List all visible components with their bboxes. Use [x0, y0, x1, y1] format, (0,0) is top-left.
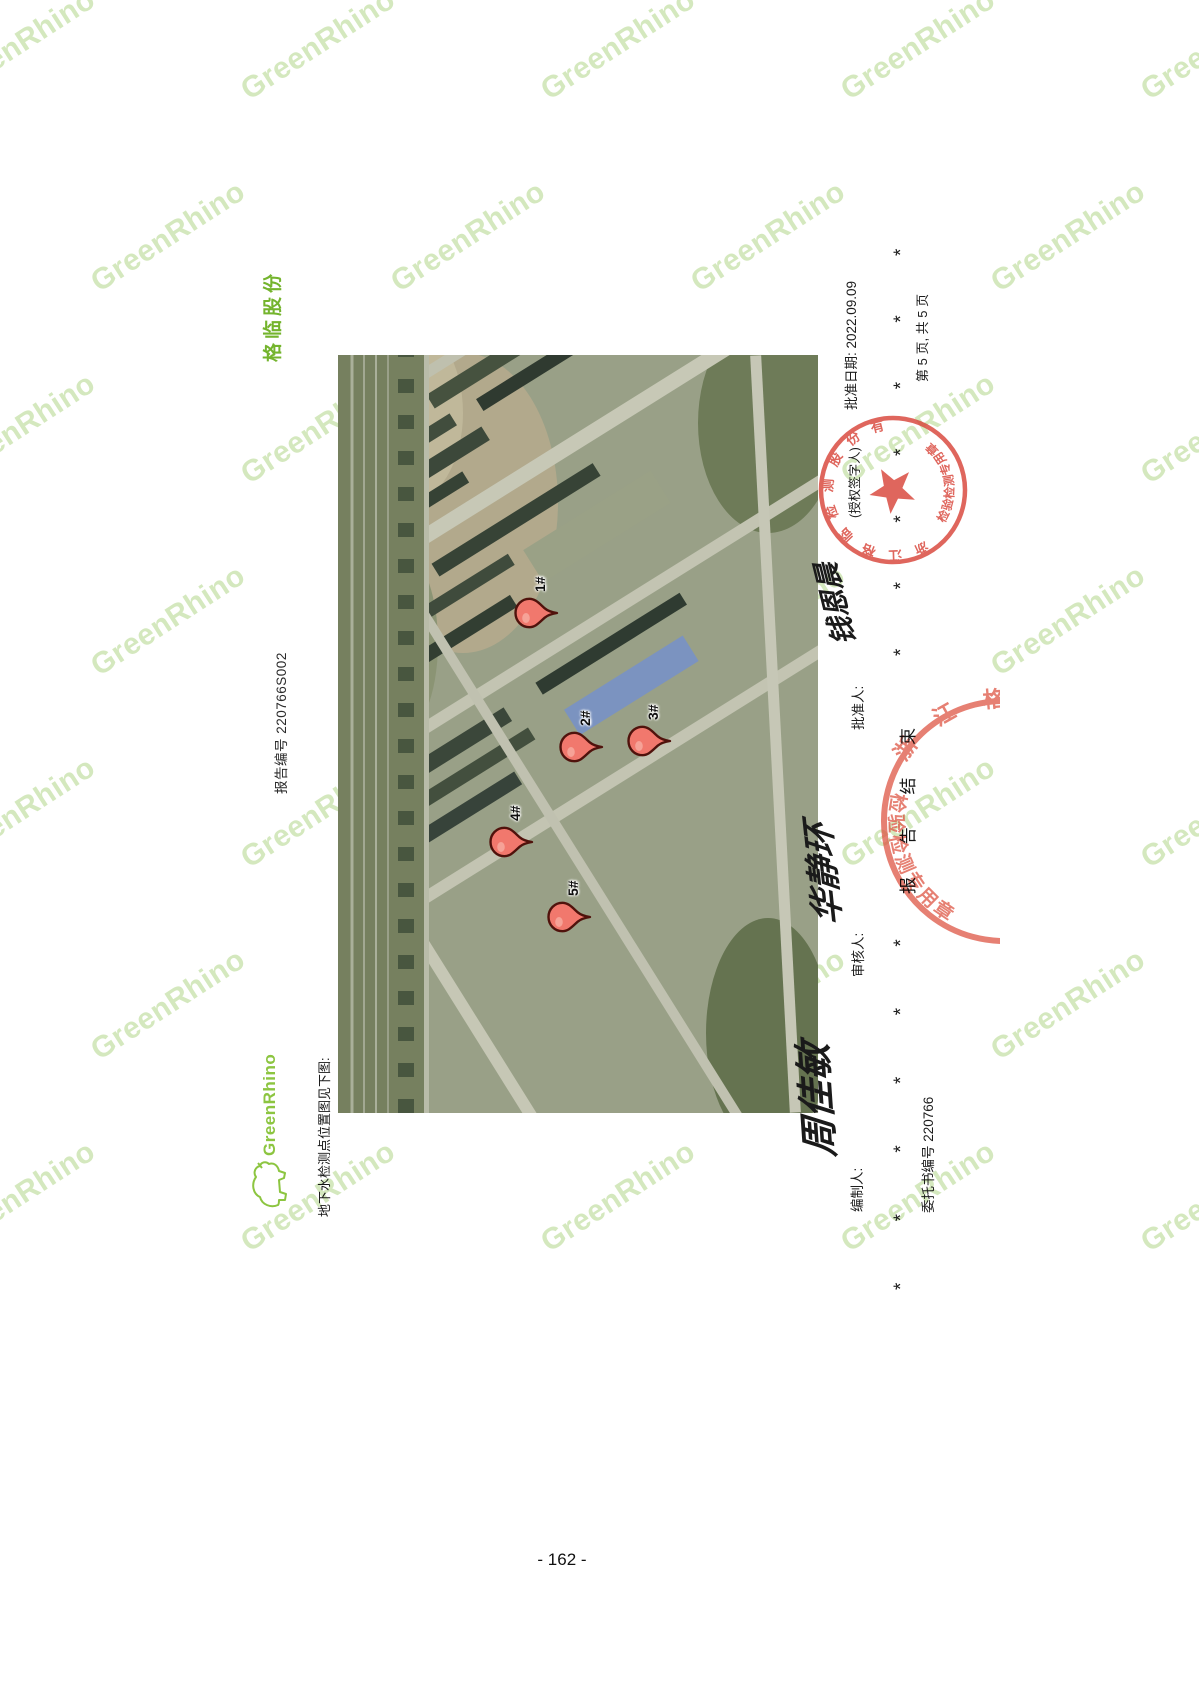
- map-marker: [558, 730, 606, 764]
- svg-text:检验检测专用章: 检验检测专用章: [918, 437, 965, 527]
- map-marker: [546, 900, 594, 934]
- map-marker-label: 4#: [507, 805, 523, 821]
- commission-number: 委托书编号 220766: [917, 1097, 937, 1213]
- map-marker-label: 3#: [645, 704, 661, 720]
- map-marker-label: 2#: [577, 710, 593, 726]
- partial-seal-stamp: 浙江格临检测股份有限公司 检验检测专用章: [868, 685, 1000, 957]
- map-marker-label: 1#: [532, 576, 548, 592]
- approver-label: 批准人:: [847, 686, 867, 730]
- reviewer-signature: 华静环: [790, 820, 850, 927]
- document-page: GreenRhinoGreenRhinoGreenRhinoGreenRhino…: [0, 0, 1199, 1696]
- map-caption: 地下水检测点位置图见下图:: [314, 1057, 333, 1217]
- svg-text:浙江格临检测股份有限公司: 浙江格临检测股份有限公司: [811, 413, 932, 572]
- preparer-signature: 周佳敏: [782, 1040, 845, 1158]
- seal-ring-text: 浙江格临检测股份有限公司: [811, 413, 932, 572]
- reviewer-label: 审核人:: [847, 933, 867, 977]
- star-icon: [865, 464, 917, 518]
- approval-date: 批准日期: 2022.09.09: [840, 281, 860, 410]
- landscape-content: GreenRhino 地下水检测点位置图见下图: 报告编号 220766S002…: [0, 0, 1199, 1696]
- map-marker: [626, 724, 674, 758]
- map-pin-icon: [626, 724, 674, 758]
- satellite-map: 1#2#3#4#5#: [338, 355, 818, 1113]
- map-pin-icon: [558, 730, 606, 764]
- company-seal-stamp: 浙江格临检测股份有限公司 检验检测专用章: [811, 408, 975, 572]
- map-marker-label: 5#: [565, 880, 581, 896]
- seal-bottom-text: 检验检测专用章: [918, 437, 965, 527]
- map-pin-icon: [488, 825, 536, 859]
- logo-text: GreenRhino: [260, 1054, 280, 1156]
- page-number: - 162 -: [522, 1550, 602, 1570]
- report-number: 报告编号 220766S002: [270, 652, 290, 794]
- company-name: 格临股份: [258, 270, 285, 362]
- map-marker: [488, 825, 536, 859]
- map-pin-icon: [513, 596, 561, 630]
- asterisk-row-left: * * * * * *: [891, 939, 913, 1290]
- preparer-label: 编制人:: [846, 1168, 866, 1212]
- map-pin-icon: [546, 900, 594, 934]
- map-marker: [513, 596, 561, 630]
- partial-seal-image: 浙江格临检测股份有限公司 检验检测专用章: [868, 685, 1000, 957]
- rhino-logo-icon: [248, 1160, 290, 1212]
- page-info: 第 5 页, 共 5 页: [912, 294, 931, 382]
